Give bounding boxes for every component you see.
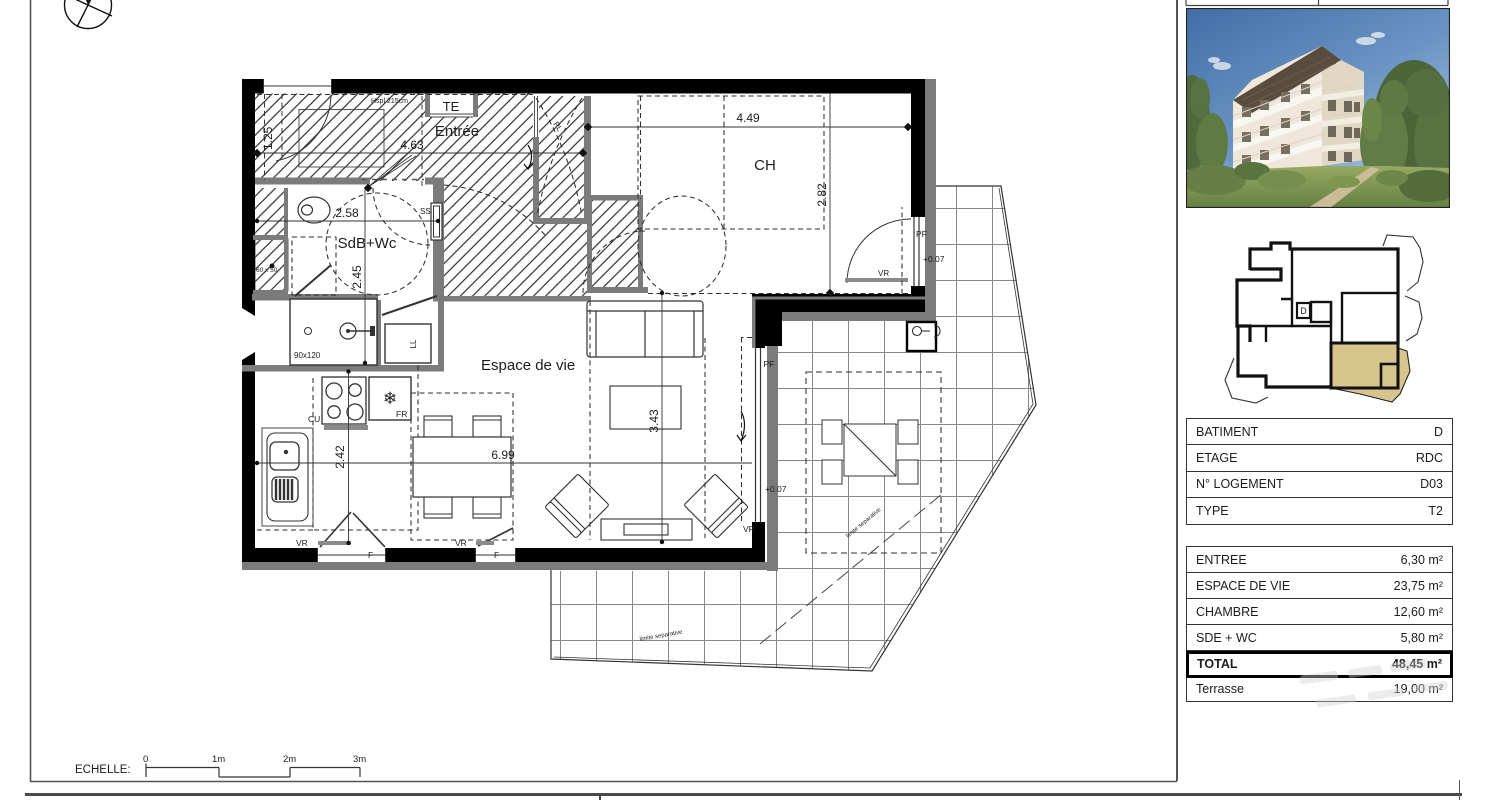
svg-text:0: 0 bbox=[143, 754, 148, 765]
svg-text:D: D bbox=[1300, 306, 1307, 316]
svg-text:VR: VR bbox=[455, 538, 467, 548]
svg-text:1m: 1m bbox=[212, 754, 225, 765]
svg-text:VR: VR bbox=[743, 524, 755, 534]
svg-text:SS: SS bbox=[420, 207, 431, 216]
svg-text:ECHELLE:: ECHELLE: bbox=[75, 764, 131, 776]
svg-text:FR: FR bbox=[396, 409, 407, 419]
svg-text:2.82: 2.82 bbox=[815, 183, 829, 207]
svg-text:Hspl 215cm: Hspl 215cm bbox=[371, 98, 408, 105]
svg-text:2m: 2m bbox=[283, 754, 296, 765]
svg-text:4.49: 4.49 bbox=[736, 111, 760, 125]
svg-text:2.58: 2.58 bbox=[335, 206, 359, 220]
svg-text:3.43: 3.43 bbox=[647, 409, 661, 433]
svg-text:❄: ❄ bbox=[383, 389, 397, 408]
svg-text:TE: TE bbox=[443, 99, 460, 114]
svg-text:F: F bbox=[494, 550, 499, 560]
svg-text:SdB+Wc: SdB+Wc bbox=[338, 235, 397, 252]
svg-text:90x120: 90x120 bbox=[294, 351, 321, 360]
svg-text:Espace de vie: Espace de vie bbox=[481, 357, 575, 374]
svg-text:VR: VR bbox=[296, 538, 308, 548]
svg-text:LL: LL bbox=[409, 339, 418, 348]
svg-text:4.63: 4.63 bbox=[400, 138, 424, 152]
svg-text:60 x 50: 60 x 50 bbox=[256, 267, 278, 274]
svg-text:F: F bbox=[368, 550, 373, 560]
svg-text:6.99: 6.99 bbox=[491, 448, 515, 462]
svg-text:Entrée: Entrée bbox=[435, 123, 479, 140]
svg-text:CH: CH bbox=[754, 157, 776, 174]
svg-text:2.42: 2.42 bbox=[333, 445, 347, 469]
svg-text:+0.07: +0.07 bbox=[765, 484, 787, 494]
svg-text:PF: PF bbox=[916, 229, 927, 239]
svg-text:PF: PF bbox=[764, 359, 775, 369]
svg-text:VR: VR bbox=[878, 269, 889, 278]
svg-text:CU: CU bbox=[308, 414, 320, 424]
svg-text:+0.07: +0.07 bbox=[923, 254, 945, 264]
svg-text:2.45: 2.45 bbox=[350, 265, 364, 289]
svg-text:1.25: 1.25 bbox=[261, 126, 275, 150]
svg-text:3m: 3m bbox=[353, 754, 366, 765]
